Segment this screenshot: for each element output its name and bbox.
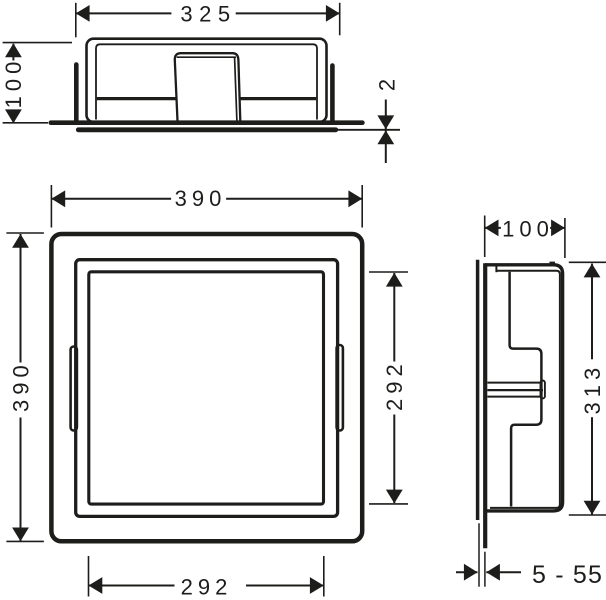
svg-text:2: 2 (374, 74, 399, 91)
svg-text:292: 292 (181, 574, 233, 599)
svg-text:100: 100 (502, 217, 554, 242)
svg-text:390: 390 (8, 360, 33, 412)
svg-text:390: 390 (175, 186, 227, 211)
svg-text:313: 313 (580, 363, 605, 415)
svg-text:325: 325 (180, 1, 236, 26)
svg-text:100: 100 (1, 57, 26, 109)
svg-text:292: 292 (382, 359, 407, 411)
svg-text:5 - 55: 5 - 55 (532, 561, 603, 589)
